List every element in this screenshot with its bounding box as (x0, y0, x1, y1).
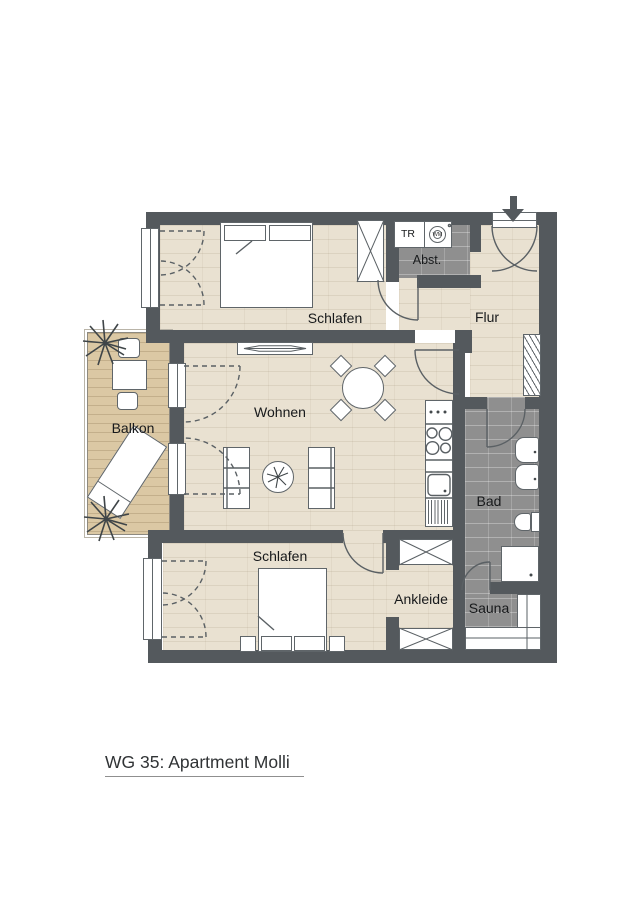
sofa (308, 447, 335, 509)
floorplan-page: Schlafen Abst. Flur Balkon Wohnen Bad Sc… (0, 0, 640, 908)
wall (490, 582, 541, 594)
wall (539, 225, 557, 663)
sideboard (237, 342, 313, 355)
wardrobe (399, 539, 453, 565)
plan-title: WG 35: Apartment Molli (105, 752, 304, 777)
wardrobe (357, 220, 384, 282)
room-label-flur: Flur (475, 309, 499, 325)
wall (170, 330, 184, 537)
window (141, 228, 159, 308)
appliance-label-washer: WM (433, 232, 443, 238)
dining-table (342, 367, 384, 409)
room-label-schlafen-bottom: Schlafen (253, 548, 307, 564)
balcony-chair (118, 338, 140, 358)
room-label-schlafen-top: Schlafen (308, 310, 362, 326)
wall (453, 343, 465, 650)
pillow (269, 225, 311, 241)
wall (386, 543, 399, 570)
wall (386, 617, 399, 650)
balcony-table (112, 360, 147, 390)
pillow (224, 225, 266, 241)
pillow (294, 636, 325, 651)
wall (470, 212, 481, 252)
wall (537, 212, 557, 225)
room-label-abstellraum: Abst. (413, 253, 442, 267)
room-label-balkon: Balkon (112, 420, 155, 436)
window (143, 558, 162, 640)
room-floor-passage (343, 530, 386, 543)
wardrobe (399, 628, 453, 650)
toilet-tank (531, 512, 540, 532)
entrance-arrow-head-icon (502, 209, 524, 222)
entrance-arrow-icon (510, 196, 517, 210)
balcony-door-threshold (168, 443, 186, 495)
balcony-chair (117, 392, 138, 410)
balcony-door-threshold (168, 363, 186, 408)
room-label-sauna: Sauna (469, 600, 509, 616)
toilet (514, 513, 531, 531)
pillow (261, 636, 292, 651)
wall (525, 397, 541, 409)
coat-rack (523, 334, 541, 396)
coffee-table (262, 461, 294, 493)
bathroom-sink (515, 464, 539, 490)
wall (148, 530, 343, 543)
wall (417, 275, 481, 288)
bathroom-sink (515, 437, 539, 463)
room-label-ankleide: Ankleide (394, 591, 448, 607)
room-label-bad: Bad (477, 493, 502, 509)
nightstand (329, 636, 345, 652)
wall (465, 397, 487, 409)
wall (148, 650, 557, 663)
sofa (223, 447, 250, 509)
sauna-bench (465, 627, 541, 650)
nightstand (240, 636, 256, 652)
appliance-label-dryer: TR (401, 228, 415, 240)
room-label-wohnen: Wohnen (254, 404, 306, 420)
kitchen-drainer (428, 500, 450, 524)
shower (501, 546, 539, 582)
